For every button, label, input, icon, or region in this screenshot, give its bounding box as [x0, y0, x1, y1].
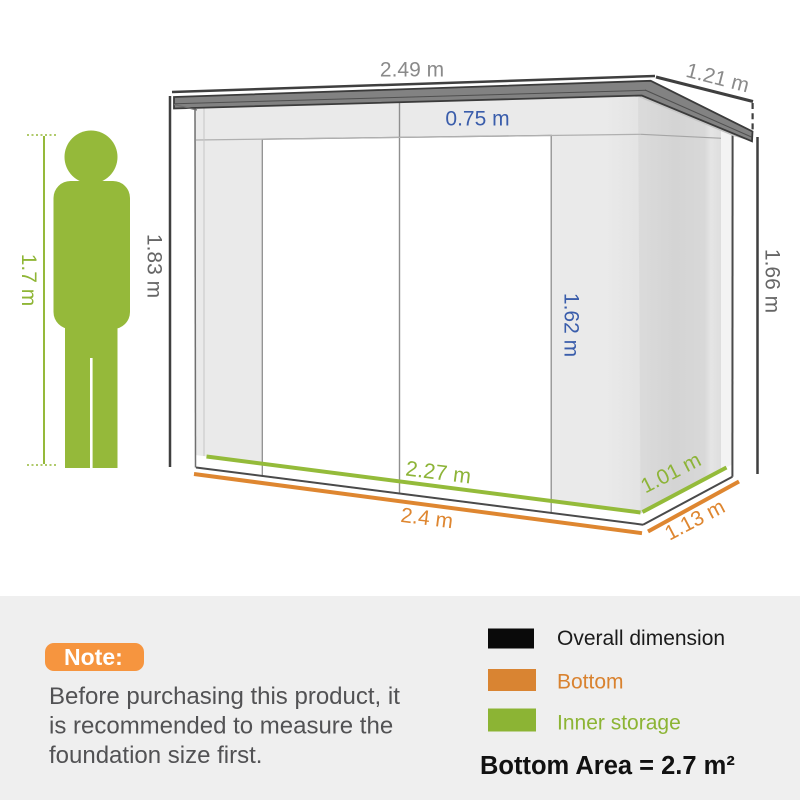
svg-text:1.83 m: 1.83 m: [142, 234, 165, 298]
svg-text:Before purchasing this product: Before purchasing this product, it: [49, 683, 400, 710]
svg-text:is recommended to measure the: is recommended to measure the: [49, 713, 393, 740]
svg-text:Bottom Area = 2.7 m²: Bottom Area = 2.7 m²: [480, 752, 735, 780]
svg-text:1.7 m: 1.7 m: [17, 254, 40, 307]
svg-text:Bottom: Bottom: [557, 671, 624, 694]
svg-text:Inner storage: Inner storage: [557, 712, 681, 735]
svg-text:Note:: Note:: [64, 644, 123, 670]
svg-text:1.66 m: 1.66 m: [760, 249, 783, 313]
svg-text:Overall dimension: Overall dimension: [557, 627, 725, 650]
svg-text:2.49 m: 2.49 m: [380, 59, 444, 82]
svg-text:0.75 m: 0.75 m: [445, 108, 509, 131]
svg-text:foundation size first.: foundation size first.: [49, 742, 262, 769]
svg-text:1.62 m: 1.62 m: [559, 293, 582, 357]
